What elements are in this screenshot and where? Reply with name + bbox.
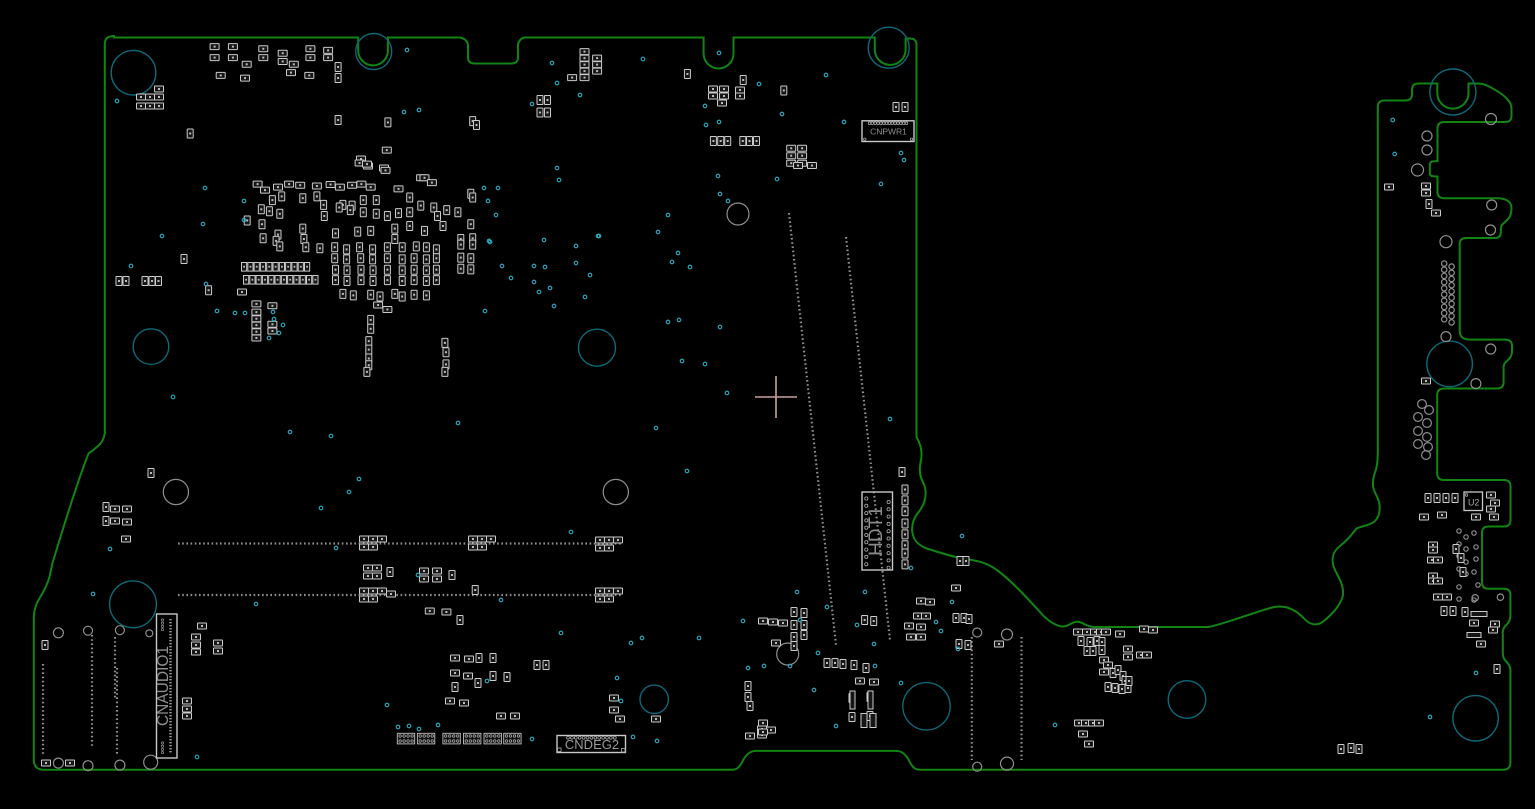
svg-text:CNPWR1: CNPWR1 [870, 127, 907, 137]
svg-text:HDT1: HDT1 [866, 506, 887, 556]
svg-text:CNAUDIO1: CNAUDIO1 [155, 646, 172, 726]
svg-text:CNDEG2: CNDEG2 [565, 737, 619, 752]
svg-text:U2: U2 [1468, 498, 1480, 508]
